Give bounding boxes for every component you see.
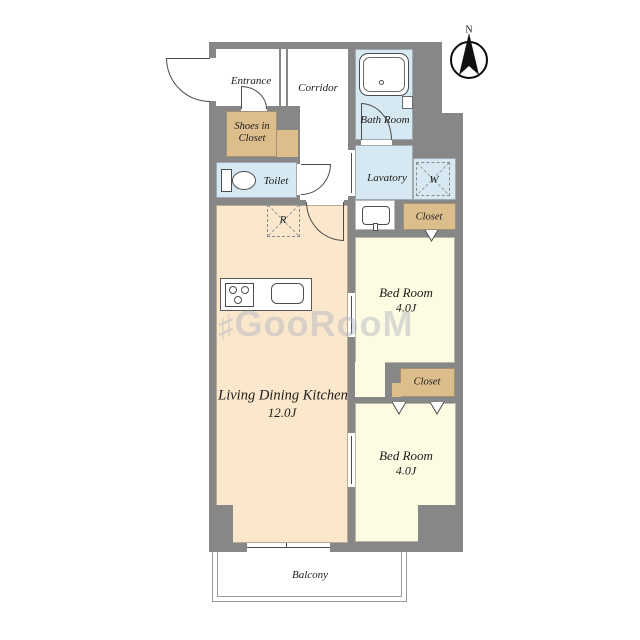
opening-entrance-door (209, 58, 216, 101)
bath-counter (402, 96, 413, 109)
closet-mid-door-mark-1 (391, 401, 407, 416)
label-fridge: R (280, 214, 287, 226)
room-closet-mid-ext (392, 383, 401, 397)
watermark-text: GooRooM (235, 303, 414, 344)
room-ldk (216, 205, 348, 543)
balcony-window-tick (286, 543, 287, 548)
sliding-door-bedroom2-line (351, 436, 352, 484)
room-shoes-closet-ext (277, 130, 298, 157)
label-closet-mid: Closet (414, 377, 441, 388)
partition-entrance-line2 (286, 49, 288, 107)
entrance-door-arc (166, 58, 210, 102)
stove-burner-1 (229, 286, 237, 294)
label-shoes-line2: Closet (234, 133, 269, 145)
opening-bath-door (361, 140, 392, 145)
label-balcony: Balcony (292, 569, 328, 581)
wall-notch-bottom-right (418, 505, 463, 552)
watermark-symbol: ♯ (219, 310, 235, 343)
balcony-window-rail (247, 547, 330, 548)
label-ldk-size: 12.0J (268, 405, 297, 421)
stove-burner-2 (241, 286, 249, 294)
closet-mid-door-mark-2 (429, 401, 445, 416)
label-entrance: Entrance (231, 75, 271, 87)
room-bedroom1-ext (355, 362, 385, 397)
compass-north-label: N (465, 25, 472, 36)
toilet-tank (221, 169, 232, 192)
label-bedroom1-size: 4.0J (396, 301, 416, 316)
partition-entrance-line1 (279, 49, 281, 107)
closet-top-door-mark (424, 229, 439, 243)
label-corridor: Corridor (298, 82, 338, 94)
label-closet-top: Closet (416, 212, 443, 223)
label-bedroom2: Bed Room (379, 448, 433, 464)
label-washer: W (429, 174, 438, 186)
sink (271, 283, 304, 304)
washbasin-faucet (373, 223, 378, 231)
label-lavatory: Lavatory (367, 172, 407, 184)
compass-needle-icon (458, 33, 480, 77)
floor-plan: N ♯GooRooM Entrance Corridor Bath Room S… (0, 0, 640, 640)
label-shoes-closet: Shoes in Closet (234, 121, 269, 145)
label-bedroom2-size: 4.0J (396, 464, 416, 479)
opening-toilet-door (297, 164, 300, 195)
wall-notch-bottom-left (209, 505, 233, 552)
label-shoes-line1: Shoes in (234, 121, 269, 133)
sliding-door-lavatory-line (351, 153, 352, 193)
label-bath: Bath Room (360, 114, 409, 126)
label-toilet: Toilet (264, 175, 289, 187)
bathtub-drain (379, 80, 384, 85)
label-ldk: Living Dining Kitchen (218, 388, 348, 405)
toilet-bowl (232, 171, 256, 190)
watermark: ♯GooRooM (219, 303, 414, 345)
bathtub-inner (363, 57, 405, 92)
label-bedroom1: Bed Room (379, 285, 433, 301)
